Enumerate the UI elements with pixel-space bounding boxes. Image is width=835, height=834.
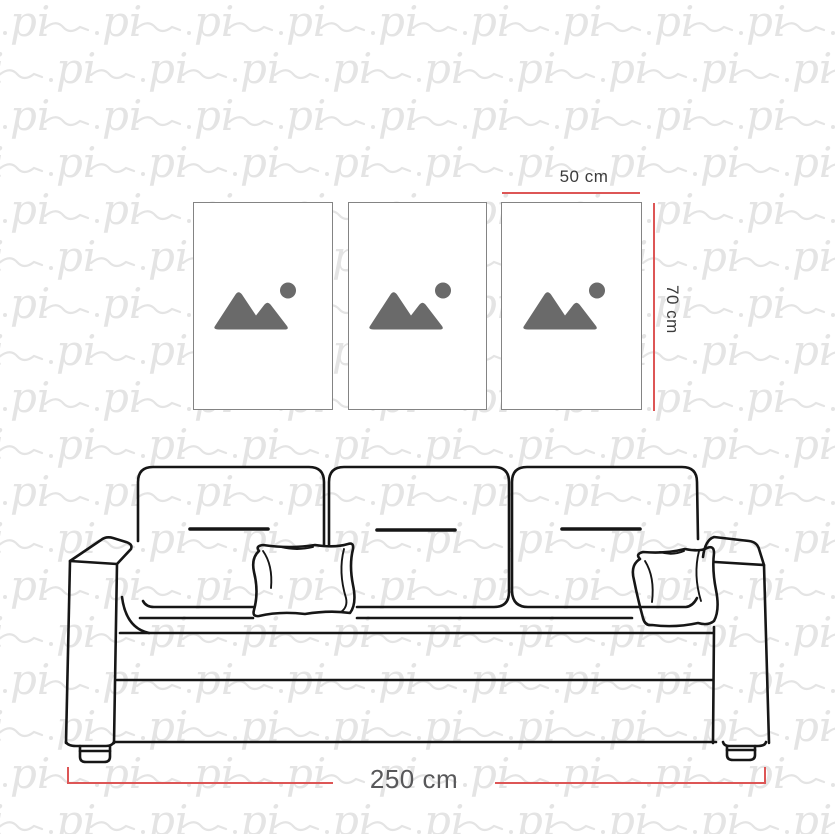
sofa-width-dimension-line-right [495,782,766,784]
sofa-width-dimension-line-left [67,782,333,784]
sofa-width-tick-right [764,767,766,784]
sofa-armrest-left [66,537,131,762]
sofa-seat [115,597,716,742]
sofa-pillow-right [633,547,718,626]
sofa-illustration [0,0,835,834]
sofa-width-label: 250 cm [333,764,495,795]
mockup-canvas: pi 50 cm [0,0,835,834]
sofa-pillow-left [253,544,354,617]
sofa-back-cushions [138,467,698,607]
